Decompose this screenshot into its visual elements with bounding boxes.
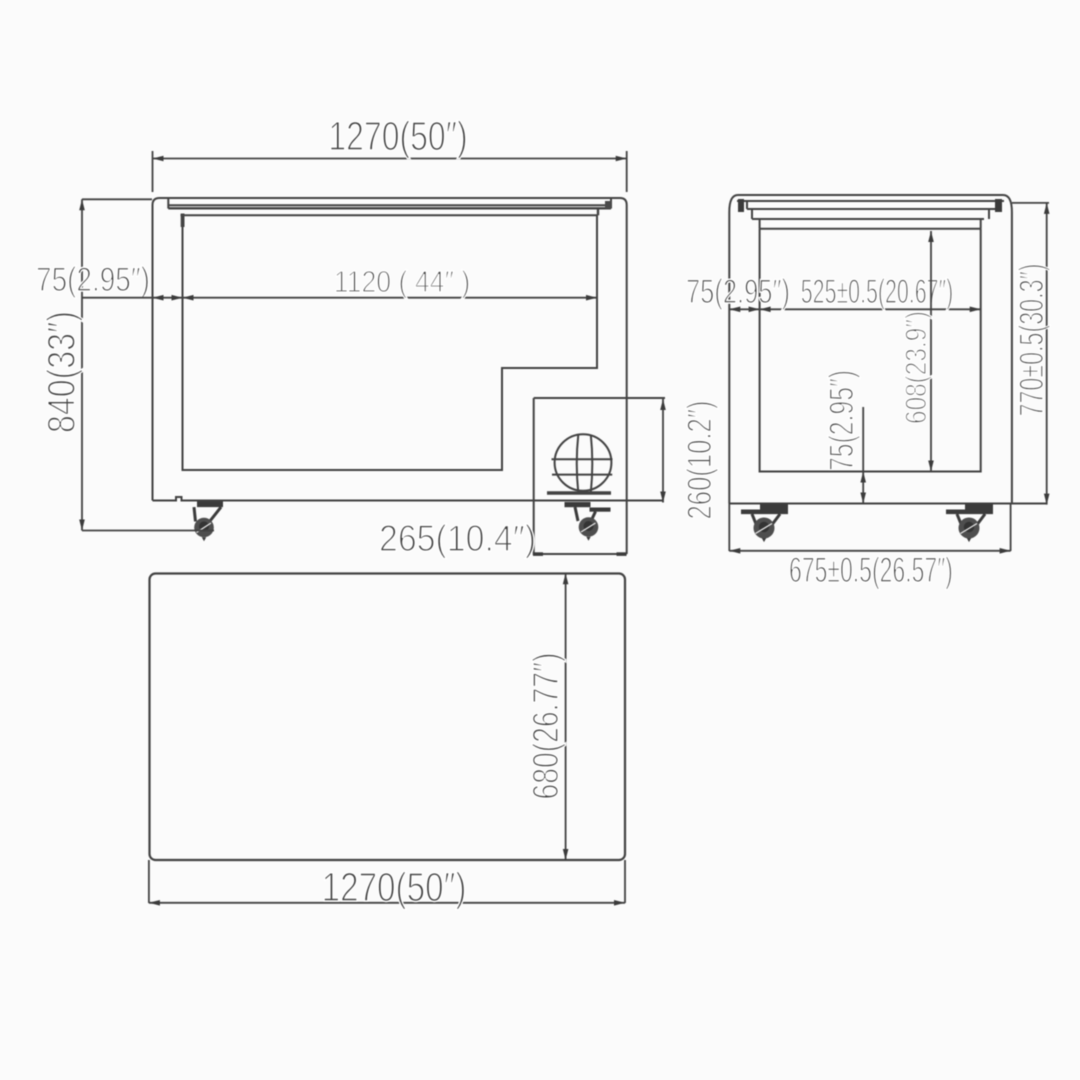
svg-text:75(2.95″): 75(2.95″) bbox=[36, 260, 150, 298]
svg-text:770±0.5(30.3″): 770±0.5(30.3″) bbox=[1014, 263, 1051, 416]
svg-text:608(23.9″): 608(23.9″) bbox=[899, 311, 933, 424]
svg-text:675±0.5(26.57″): 675±0.5(26.57″) bbox=[789, 551, 953, 590]
svg-text:75(2.95″): 75(2.95″) bbox=[686, 274, 790, 311]
svg-text:1120 ( 44″ ): 1120 ( 44″ ) bbox=[334, 265, 470, 299]
svg-text:1270(50″): 1270(50″) bbox=[322, 864, 467, 910]
svg-text:840(33″): 840(33″) bbox=[40, 311, 84, 433]
svg-text:75(2.95″): 75(2.95″) bbox=[823, 370, 861, 471]
svg-text:265(10.4″): 265(10.4″) bbox=[379, 518, 536, 560]
svg-text:680(26.77″): 680(26.77″) bbox=[526, 653, 566, 800]
svg-text:1270(50″): 1270(50″) bbox=[328, 113, 467, 159]
svg-text:260(10.2″): 260(10.2″) bbox=[682, 401, 719, 520]
